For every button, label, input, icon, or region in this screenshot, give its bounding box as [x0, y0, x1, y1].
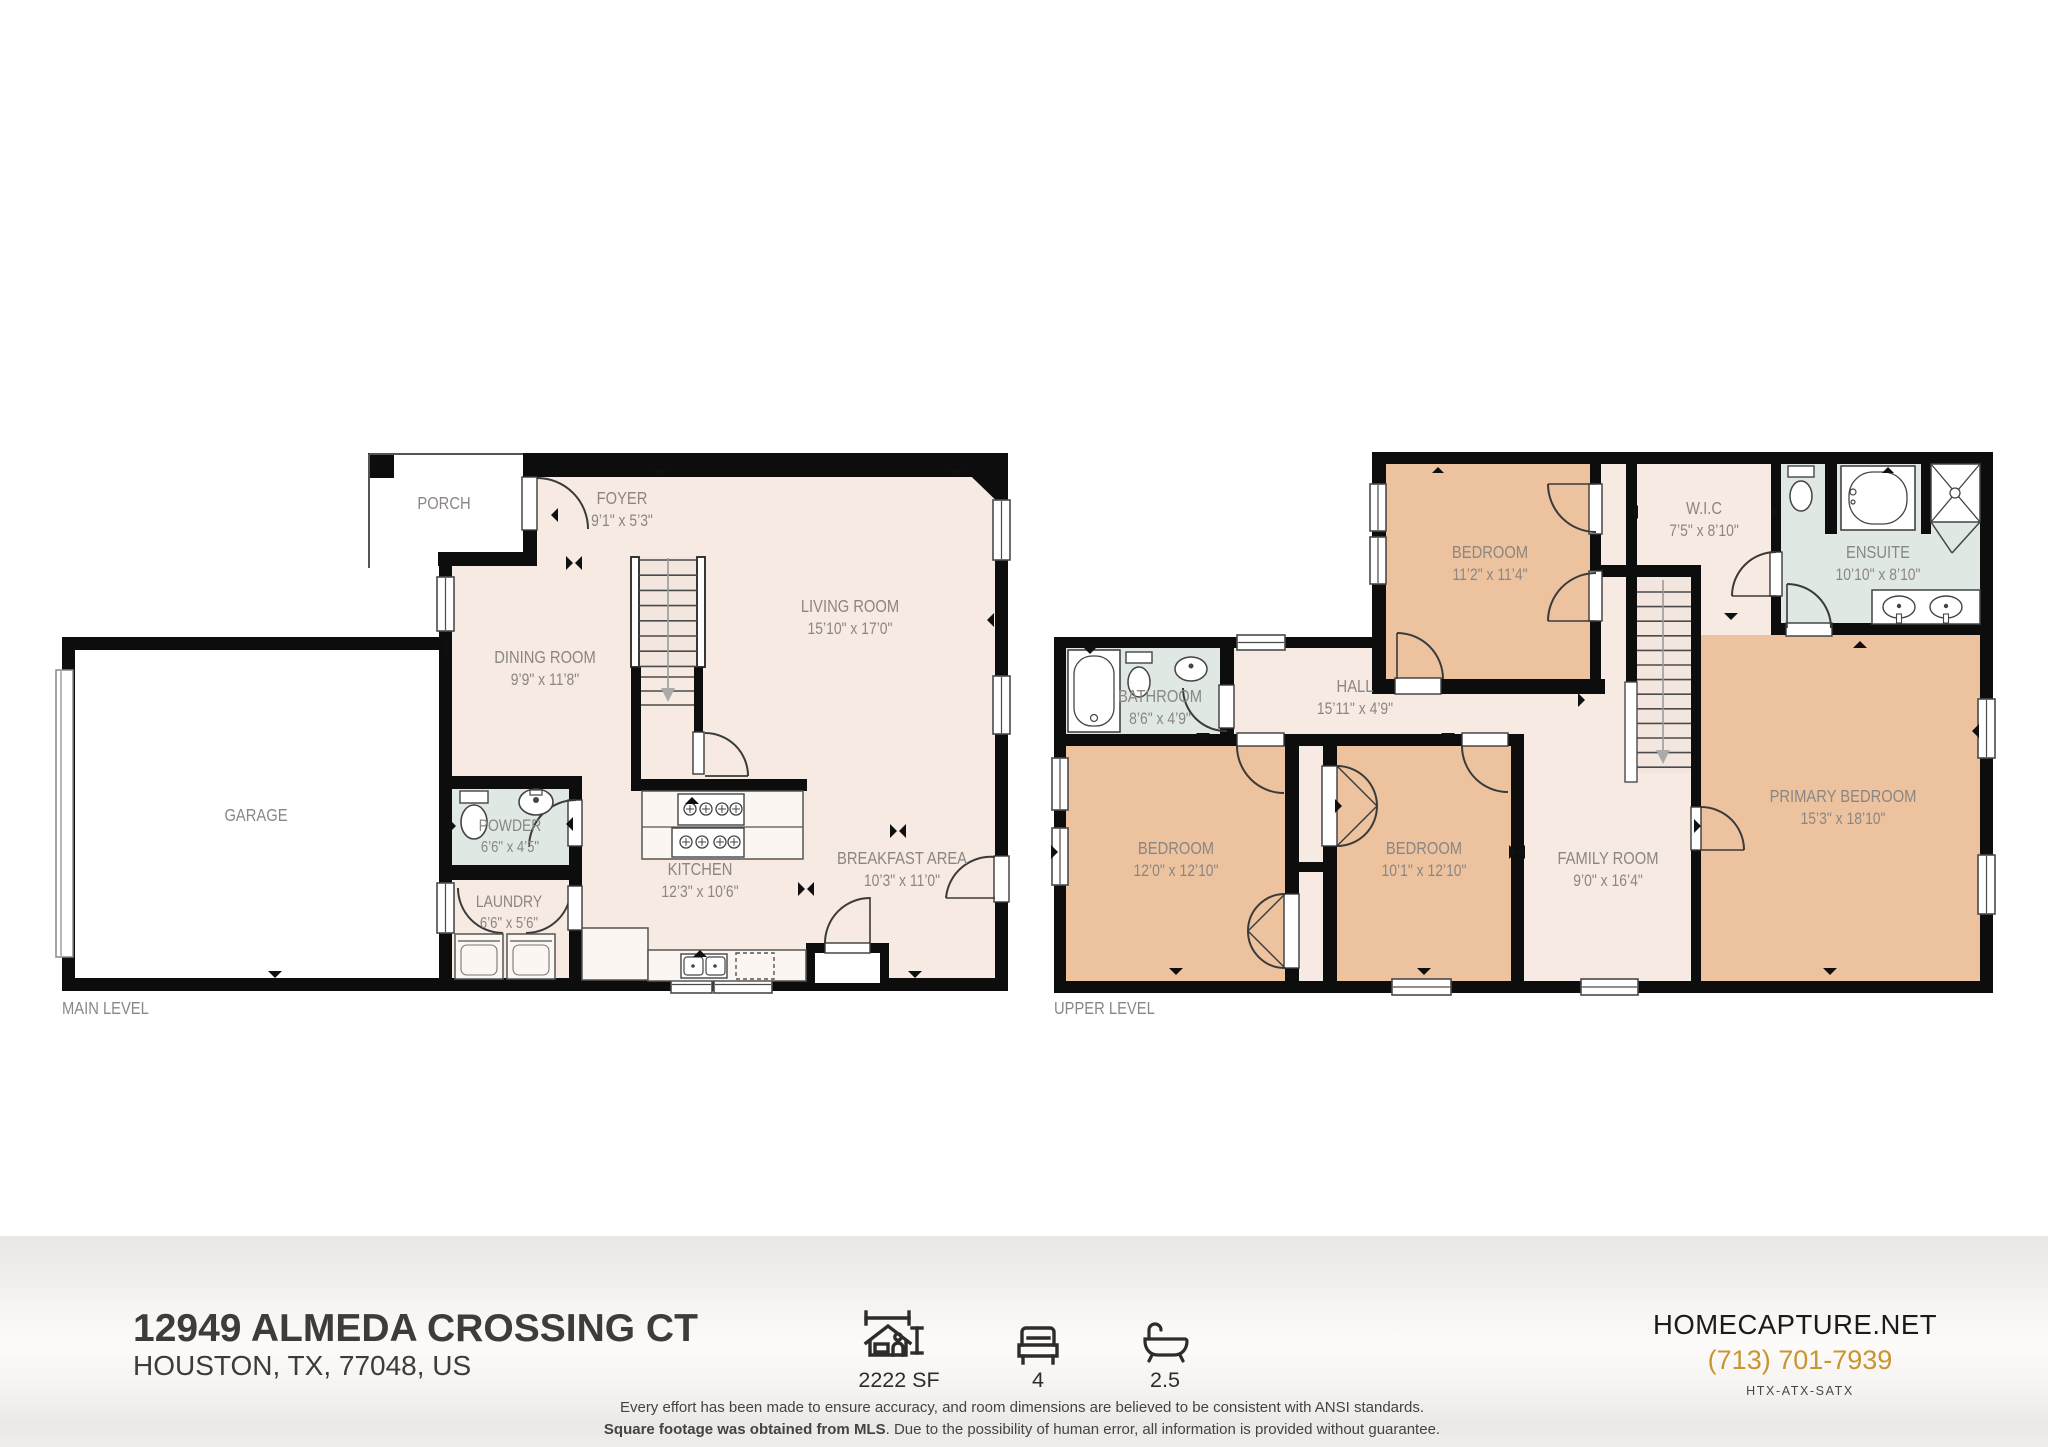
svg-text:FAMILY ROOM: FAMILY ROOM [1557, 849, 1658, 869]
svg-text:POWDER: POWDER [479, 817, 542, 836]
svg-text:15’10" x 17’0": 15’10" x 17’0" [807, 620, 892, 639]
svg-text:GARAGE: GARAGE [224, 806, 287, 826]
svg-text:PRIMARY BEDROOM: PRIMARY BEDROOM [1770, 787, 1917, 807]
svg-text:BEDROOM: BEDROOM [1452, 543, 1528, 563]
svg-text:DINING ROOM: DINING ROOM [494, 648, 596, 668]
svg-text:9’0" x 16’4": 9’0" x 16’4" [1573, 872, 1643, 891]
svg-text:2222 SF: 2222 SF [858, 1368, 939, 1392]
svg-text:12’0" x 12’10": 12’0" x 12’10" [1133, 862, 1218, 881]
svg-text:ENSUITE: ENSUITE [1846, 543, 1910, 563]
svg-text:MAIN LEVEL: MAIN LEVEL [62, 999, 149, 1019]
svg-text:9’9" x 11’8": 9’9" x 11’8" [511, 671, 579, 690]
svg-text:10’1" x 12’10": 10’1" x 12’10" [1381, 862, 1466, 881]
svg-text:4: 4 [1032, 1368, 1044, 1392]
svg-text:W.I.C: W.I.C [1686, 499, 1722, 519]
svg-text:Every effort has been made to: Every effort has been made to ensure acc… [620, 1399, 1424, 1416]
svg-text:HOMECAPTURE.NET: HOMECAPTURE.NET [1653, 1309, 1937, 1340]
svg-text:7’5" x 8’10": 7’5" x 8’10" [1669, 522, 1739, 541]
svg-text:PORCH: PORCH [417, 494, 470, 514]
svg-text:12949 ALMEDA CROSSING CT: 12949 ALMEDA CROSSING CT [133, 1307, 698, 1350]
svg-text:LIVING ROOM: LIVING ROOM [801, 597, 899, 617]
svg-text:FOYER: FOYER [597, 489, 648, 509]
svg-text:(713) 701-7939: (713) 701-7939 [1708, 1345, 1893, 1375]
svg-text:HALL: HALL [1337, 677, 1374, 697]
svg-text:BREAKFAST AREA: BREAKFAST AREA [837, 849, 967, 869]
svg-text:BEDROOM: BEDROOM [1138, 839, 1214, 859]
svg-text:10’3" x 11’0": 10’3" x 11’0" [864, 872, 940, 891]
svg-text:10’10" x 8’10": 10’10" x 8’10" [1835, 566, 1920, 585]
svg-text:9’1" x 5’3": 9’1" x 5’3" [591, 512, 653, 531]
svg-text:Square footage was obtained fr: Square footage was obtained from MLS. Du… [604, 1421, 1440, 1438]
svg-text:BEDROOM: BEDROOM [1386, 839, 1462, 859]
svg-text:8’6" x 4’9": 8’6" x 4’9" [1129, 710, 1191, 729]
svg-text:12’3" x 10’6": 12’3" x 10’6" [661, 883, 738, 902]
svg-text:11’2" x 11’4": 11’2" x 11’4" [1452, 566, 1527, 585]
svg-text:2.5: 2.5 [1150, 1368, 1180, 1392]
svg-text:6’6" x 5’6": 6’6" x 5’6" [480, 915, 538, 932]
svg-text:15’11" x 4’9": 15’11" x 4’9" [1317, 700, 1393, 719]
svg-text:HOUSTON, TX, 77048, US: HOUSTON, TX, 77048, US [133, 1350, 471, 1381]
svg-text:UPPER LEVEL: UPPER LEVEL [1054, 999, 1155, 1019]
svg-text:HTX-ATX-SATX: HTX-ATX-SATX [1746, 1384, 1854, 1398]
svg-text:KITCHEN: KITCHEN [668, 860, 733, 880]
svg-text:BATHROOM: BATHROOM [1118, 687, 1202, 707]
svg-text:6’6" x 4’5": 6’6" x 4’5" [481, 839, 539, 856]
svg-text:15’3" x 18’10": 15’3" x 18’10" [1800, 810, 1885, 829]
svg-text:LAUNDRY: LAUNDRY [476, 893, 543, 912]
